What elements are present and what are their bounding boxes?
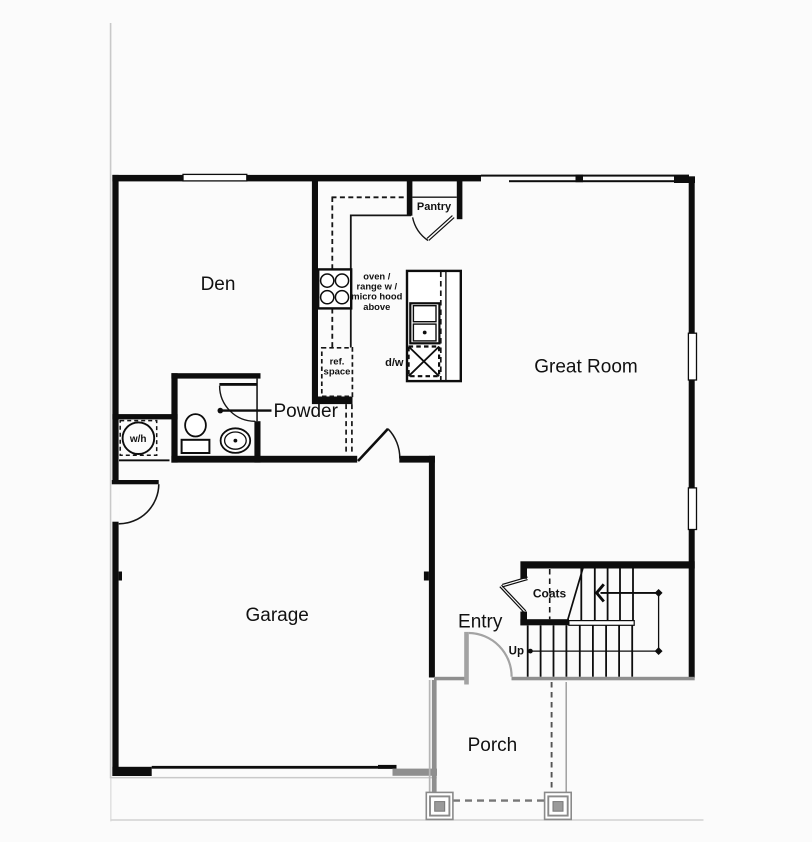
svg-text:d/w: d/w bbox=[385, 357, 404, 369]
svg-text:Up: Up bbox=[509, 646, 524, 658]
svg-text:Porch: Porch bbox=[468, 735, 518, 756]
svg-text:space: space bbox=[324, 367, 351, 378]
svg-text:Garage: Garage bbox=[246, 605, 309, 626]
svg-text:w/h: w/h bbox=[129, 434, 147, 445]
svg-text:Great Room: Great Room bbox=[534, 357, 637, 378]
svg-text:Pantry: Pantry bbox=[417, 201, 452, 213]
svg-text:Powder: Powder bbox=[274, 401, 339, 422]
svg-text:above: above bbox=[363, 301, 390, 312]
svg-text:Coats: Coats bbox=[533, 587, 567, 601]
svg-text:Den: Den bbox=[201, 274, 236, 295]
svg-text:Entry: Entry bbox=[458, 612, 503, 633]
